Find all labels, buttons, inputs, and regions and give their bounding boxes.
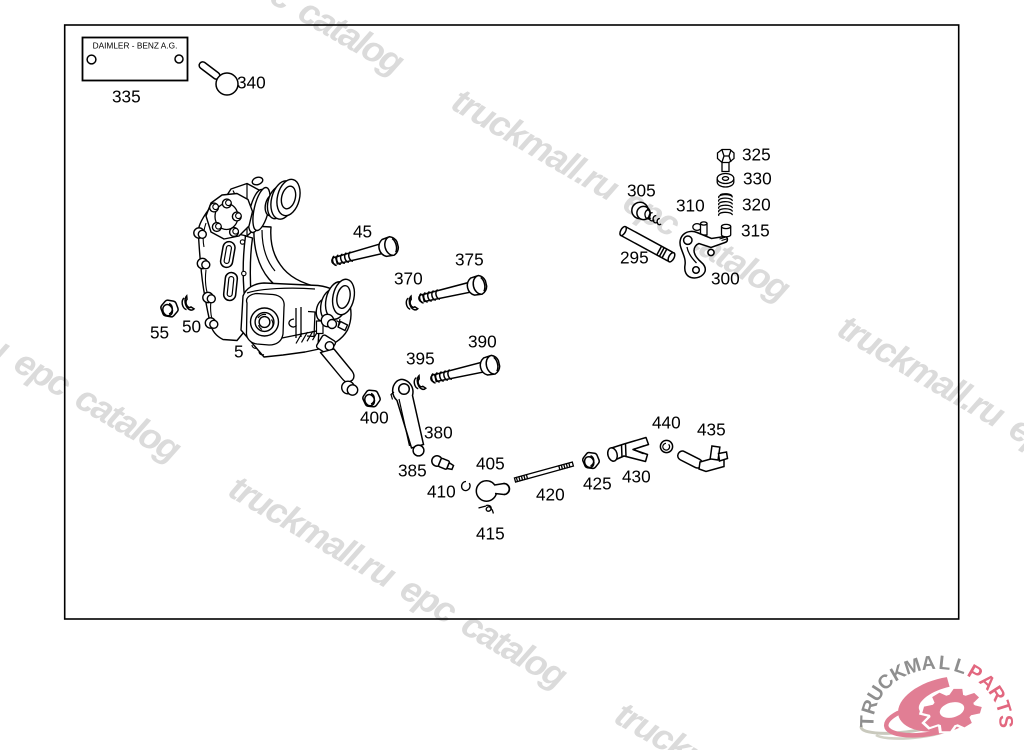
svg-text:55: 55 — [150, 323, 169, 343]
svg-text:300: 300 — [711, 269, 740, 289]
svg-text:380: 380 — [424, 423, 453, 443]
svg-text:425: 425 — [583, 474, 612, 494]
svg-text:305: 305 — [627, 181, 656, 201]
svg-text:S: S — [994, 715, 1016, 729]
svg-text:330: 330 — [743, 169, 772, 189]
svg-text:435: 435 — [697, 420, 726, 440]
svg-text:430: 430 — [622, 467, 651, 487]
svg-text:335: 335 — [112, 87, 141, 107]
svg-text:395: 395 — [406, 349, 435, 369]
svg-text:440: 440 — [652, 413, 681, 433]
svg-text:325: 325 — [742, 145, 771, 165]
svg-text:50: 50 — [182, 317, 201, 337]
svg-text:5: 5 — [234, 342, 244, 362]
svg-text:320: 320 — [742, 195, 771, 215]
svg-text:415: 415 — [476, 524, 505, 544]
svg-text:385: 385 — [398, 461, 427, 481]
svg-text:370: 370 — [394, 269, 423, 289]
svg-text:45: 45 — [353, 222, 372, 242]
svg-text:420: 420 — [536, 485, 565, 505]
svg-text:295: 295 — [620, 248, 649, 268]
svg-text:L: L — [938, 652, 952, 675]
svg-text:310: 310 — [676, 196, 705, 216]
svg-text:390: 390 — [468, 332, 497, 352]
svg-text:A: A — [920, 652, 936, 675]
svg-text:410: 410 — [427, 482, 456, 502]
svg-text:315: 315 — [741, 221, 770, 241]
svg-text:400: 400 — [360, 408, 389, 428]
svg-text:405: 405 — [476, 454, 505, 474]
svg-text:DAIMLER - BENZ A.G.: DAIMLER - BENZ A.G. — [93, 41, 178, 51]
svg-text:375: 375 — [455, 250, 484, 270]
svg-text:340: 340 — [237, 73, 266, 93]
